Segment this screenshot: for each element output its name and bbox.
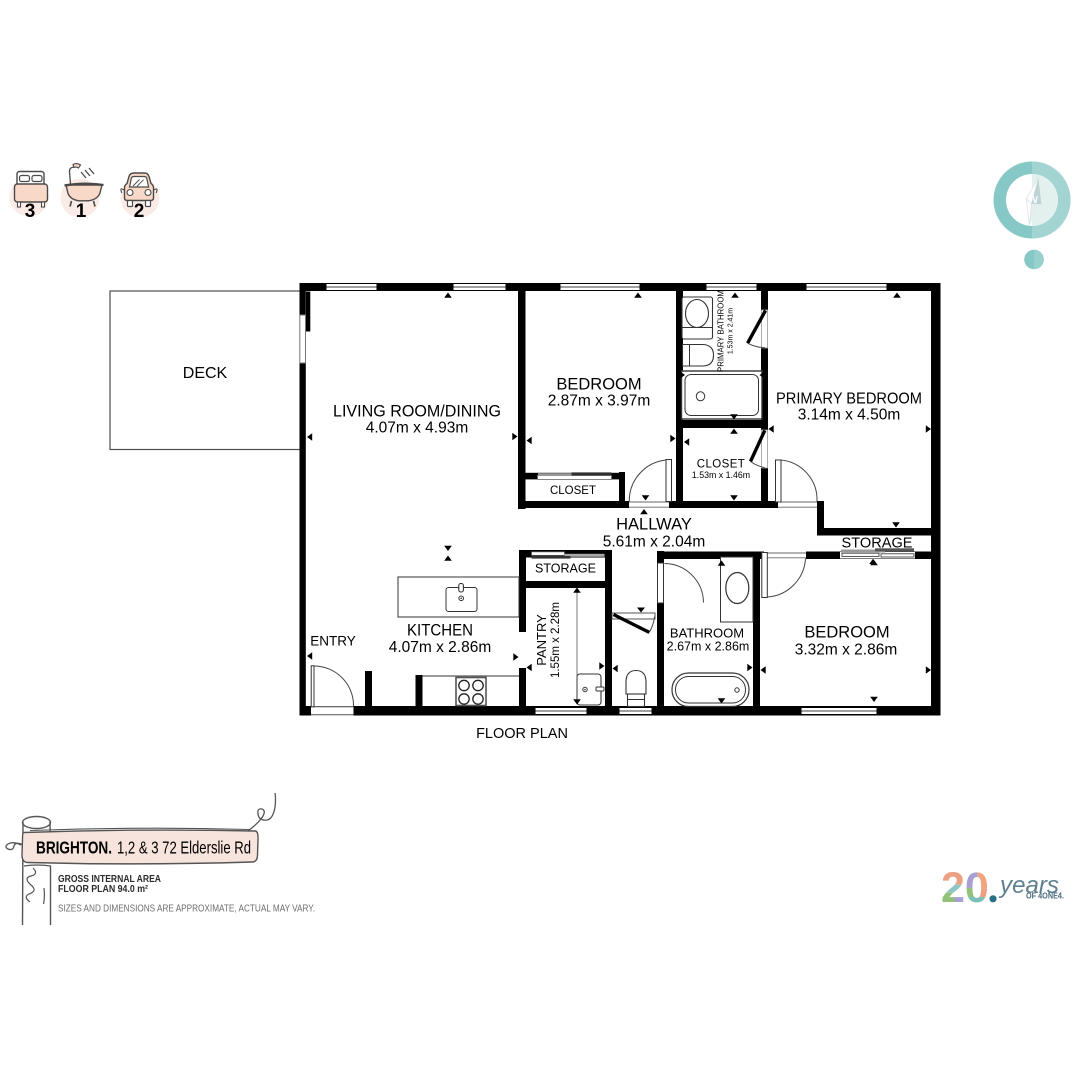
svg-text:3.14m x 4.50m: 3.14m x 4.50m — [798, 407, 901, 424]
svg-text:20: 20 — [941, 864, 989, 912]
svg-text:PRIMARY BEDROOM: PRIMARY BEDROOM — [776, 391, 922, 408]
svg-text:FLOOR PLAN 94.0 m²: FLOOR PLAN 94.0 m² — [58, 884, 149, 895]
svg-text:BEDROOM: BEDROOM — [804, 624, 889, 642]
svg-text:PRIMARY BATHROOM: PRIMARY BATHROOM — [717, 290, 726, 372]
svg-text:SIZES AND DIMENSIONS ARE APPRO: SIZES AND DIMENSIONS ARE APPROXIMATE, AC… — [58, 904, 315, 915]
svg-text:2.87m x 3.97m: 2.87m x 3.97m — [548, 393, 651, 410]
svg-text:3.32m x 2.86m: 3.32m x 2.86m — [795, 642, 898, 659]
svg-text:OF 4ONE4.: OF 4ONE4. — [1026, 891, 1064, 901]
svg-text:PANTRY: PANTRY — [534, 614, 549, 666]
svg-text:5.61m x 2.04m: 5.61m x 2.04m — [603, 534, 706, 551]
svg-text:ENTRY: ENTRY — [310, 634, 356, 649]
svg-text:DECK: DECK — [183, 365, 228, 382]
svg-text:2.67m x 2.86m: 2.67m x 2.86m — [667, 640, 750, 654]
svg-text:LIVING ROOM/DINING: LIVING ROOM/DINING — [333, 403, 501, 421]
svg-text:STORAGE: STORAGE — [535, 562, 596, 576]
svg-text:1.53m x 2.41m: 1.53m x 2.41m — [728, 308, 735, 354]
svg-text:CLOSET: CLOSET — [550, 485, 596, 497]
svg-text:STORAGE: STORAGE — [842, 536, 913, 552]
svg-text:1.55m x 2.28m: 1.55m x 2.28m — [550, 602, 562, 678]
svg-text:4.07m x 4.93m: 4.07m x 4.93m — [366, 420, 469, 437]
svg-text:4.07m x 2.86m: 4.07m x 2.86m — [389, 639, 492, 656]
svg-text:CLOSET: CLOSET — [697, 459, 745, 471]
svg-text:HALLWAY: HALLWAY — [616, 516, 692, 534]
svg-text:1.53m x 1.46m: 1.53m x 1.46m — [692, 470, 750, 480]
svg-text:3: 3 — [25, 201, 36, 222]
svg-text:BRIGHTON.: BRIGHTON. — [36, 838, 112, 858]
svg-text:KITCHEN: KITCHEN — [407, 622, 473, 640]
svg-text:BATHROOM: BATHROOM — [670, 626, 744, 641]
svg-text:1,2 & 3 72 Elderslie Rd: 1,2 & 3 72 Elderslie Rd — [117, 838, 251, 858]
svg-text:BEDROOM: BEDROOM — [556, 376, 641, 394]
svg-text:1: 1 — [76, 201, 87, 222]
svg-text:FLOOR PLAN: FLOOR PLAN — [476, 726, 568, 742]
svg-text:2: 2 — [134, 201, 145, 222]
